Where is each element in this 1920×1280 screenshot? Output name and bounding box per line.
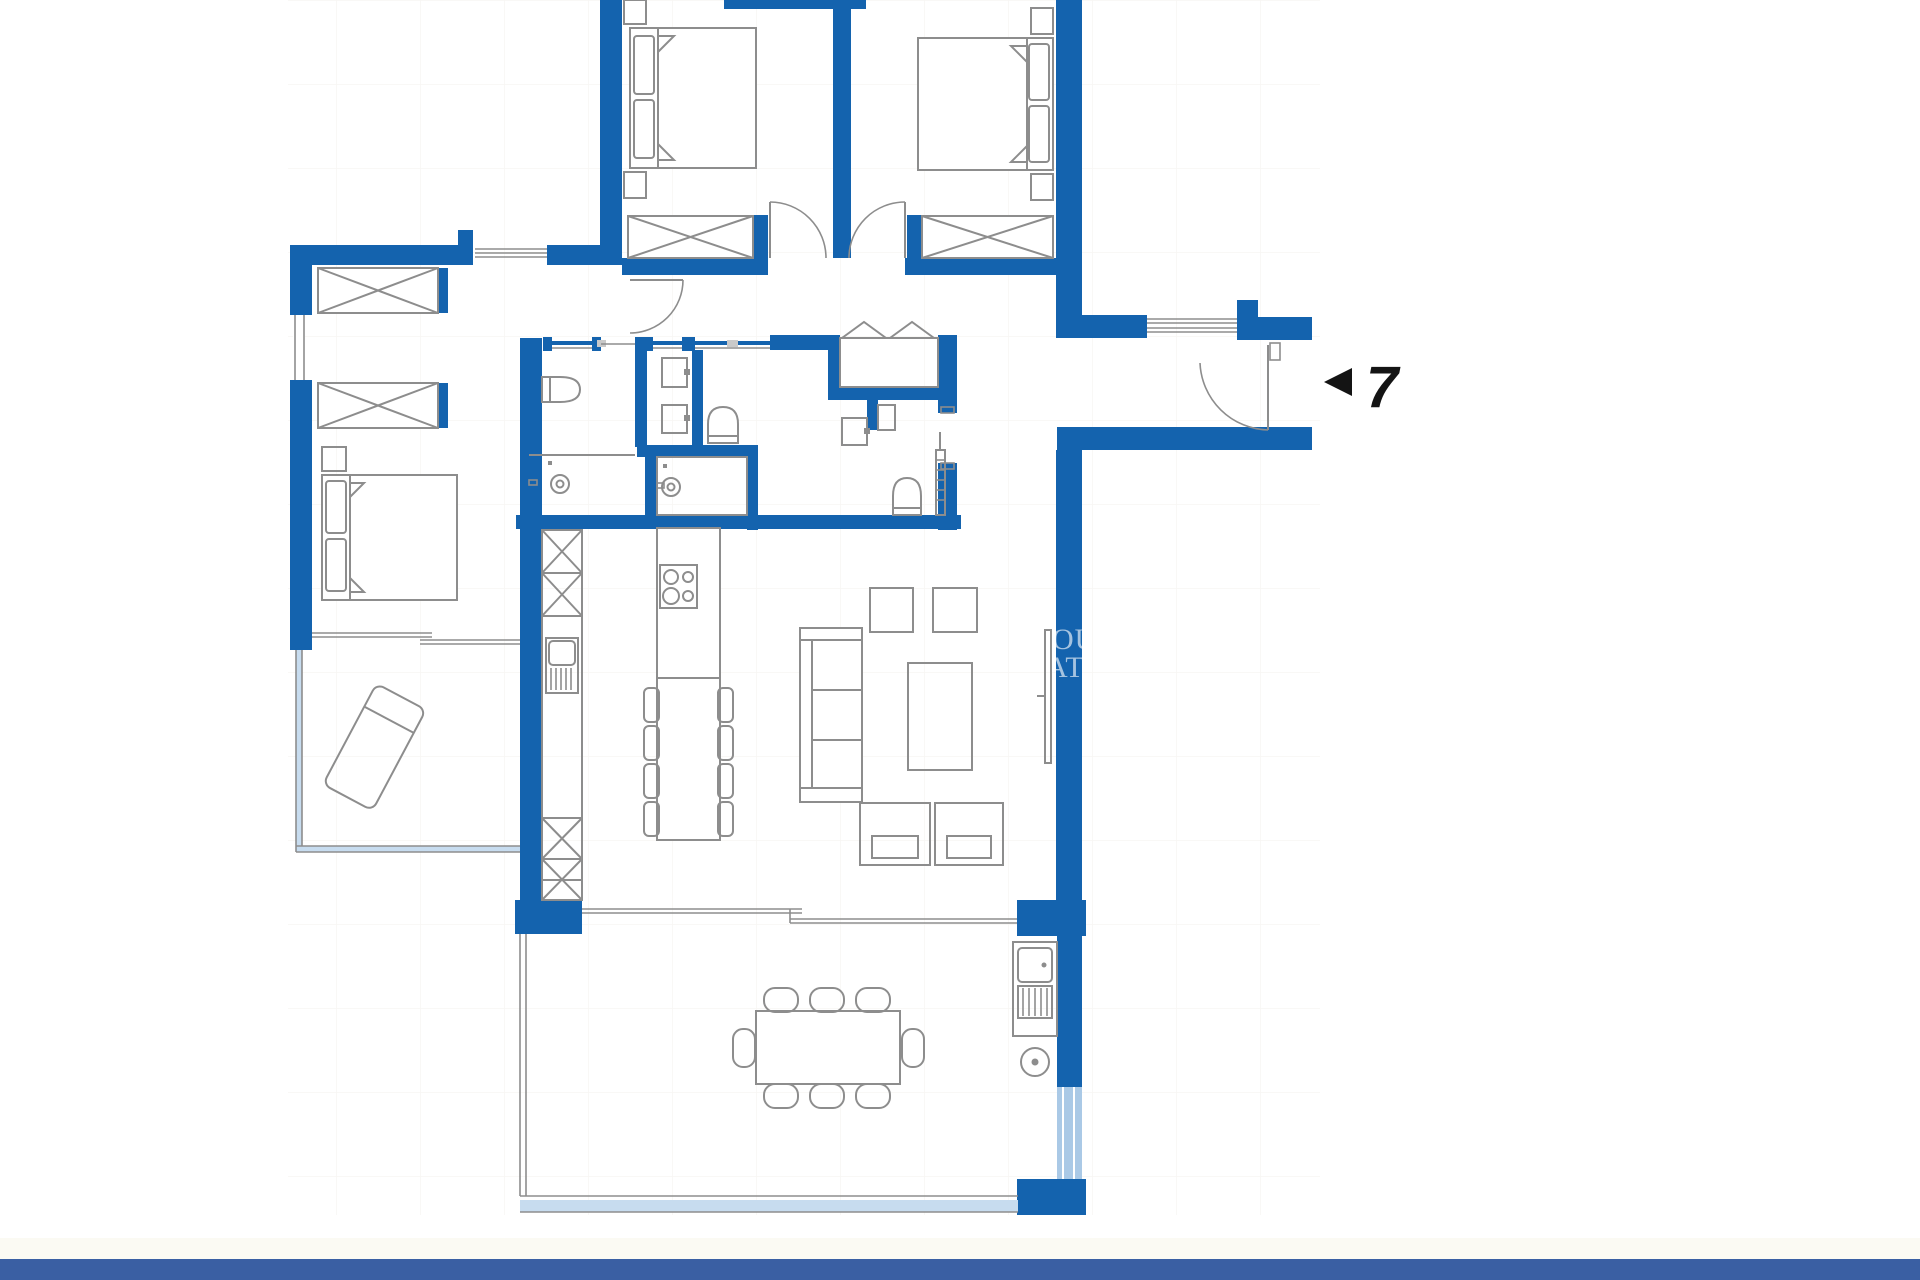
- bedroom-2: [918, 8, 1053, 258]
- toilet-icon: [708, 407, 738, 443]
- wardrobe-icon: [628, 216, 753, 258]
- unit-number: 7: [1366, 355, 1401, 420]
- entrance-arrow-icon: [1324, 368, 1352, 396]
- floor-plan-page: OU AT 7: [0, 0, 1920, 1280]
- footer-strip: [0, 1238, 1920, 1260]
- faucet-icon: [684, 369, 690, 375]
- toilet-icon: [542, 377, 580, 402]
- bed-double-icon: [322, 475, 457, 600]
- wardrobe-icon: [318, 268, 438, 313]
- wardrobe-icon: [318, 383, 438, 428]
- footer-bar: [0, 1259, 1920, 1280]
- faucet-icon: [864, 428, 870, 434]
- dining-table: [657, 678, 720, 840]
- outdoor-dining-table: [756, 1011, 900, 1084]
- entrance-marker: 7: [1324, 355, 1401, 420]
- faucet-icon: [684, 415, 690, 421]
- door-label-smudge: [727, 340, 738, 347]
- sofa-icon: [800, 628, 862, 802]
- bed-double-icon: [918, 38, 1053, 170]
- bedroom-1: [624, 0, 756, 258]
- floor-plan: OU AT 7: [0, 0, 1920, 1280]
- bed-double-icon: [630, 28, 756, 168]
- grill-icon: [1018, 986, 1052, 1018]
- kitchen-island: [644, 528, 733, 840]
- wardrobe-icon: [922, 216, 1053, 258]
- toilet-icon: [893, 478, 921, 515]
